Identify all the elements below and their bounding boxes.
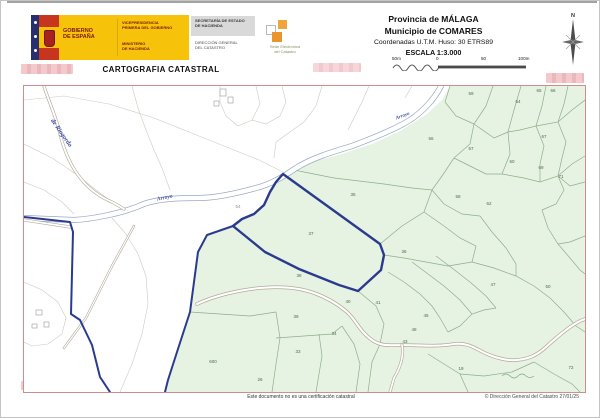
flag-stars-stripe bbox=[31, 15, 39, 60]
utm-coordinates-label: Coordenadas U.T.M. Huso: 30 ETRS89 bbox=[331, 38, 536, 48]
parcel-number-label: 59 bbox=[468, 91, 474, 96]
parcel-number-label: 60 bbox=[509, 159, 515, 164]
scale-bar-graphic bbox=[392, 62, 534, 71]
dir-line2: DEL CATASTRO bbox=[195, 45, 225, 50]
parcel-number-label: 69 bbox=[538, 165, 544, 170]
parcel-number-label: 38 bbox=[296, 273, 302, 278]
parcel-number-label: 43 bbox=[402, 339, 408, 344]
catastro-square-icon bbox=[272, 32, 282, 42]
parcel-number-label: 66 bbox=[550, 88, 556, 93]
redacted-area bbox=[546, 73, 584, 83]
parcel-number-label: 40 bbox=[345, 299, 351, 304]
secretaria-estado-label: SECRETARÍA DE ESTADO DE HACIENDA bbox=[191, 16, 255, 36]
parcel-number-label: 47 bbox=[490, 282, 496, 287]
parcel-number-label: 54 bbox=[235, 204, 241, 209]
parcel-number-label: 72 bbox=[568, 365, 574, 370]
min-line2: DE HACIENDA bbox=[122, 46, 150, 51]
redacted-area bbox=[21, 64, 73, 74]
gobierno-espana-logo: GOBIERNO DE ESPAÑA VICEPRESIDENCIA PRIME… bbox=[39, 15, 189, 60]
parcel-number-label: 35 bbox=[350, 192, 356, 197]
parcel-number-label: 45 bbox=[423, 313, 429, 318]
parcel-number-label: 37 bbox=[308, 231, 314, 236]
parcel-number-label: 26 bbox=[257, 377, 263, 382]
cadastral-map[interactable]: 5964656656576760697158623537363840413945… bbox=[24, 86, 585, 392]
municipal-boundary bbox=[24, 217, 110, 392]
scale-tick-label: 100m bbox=[518, 56, 530, 61]
coat-of-arms-icon bbox=[44, 30, 55, 47]
catastro-square-icon bbox=[278, 20, 287, 29]
star-icon bbox=[34, 35, 37, 38]
parcel-number-label: 58 bbox=[455, 194, 461, 199]
scale-tick-label: 0 bbox=[436, 56, 439, 61]
location-header: Provincia de MÁLAGA Municipio de COMARES… bbox=[331, 14, 536, 58]
scale-solid-bar bbox=[438, 66, 526, 69]
gobierno-label: GOBIERNO DE ESPAÑA bbox=[63, 28, 113, 41]
divider bbox=[117, 19, 118, 56]
parcel-number-label: 67 bbox=[541, 134, 547, 139]
provincia-label: Provincia de MÁLAGA bbox=[331, 14, 536, 26]
scale-zigzag bbox=[393, 65, 439, 71]
compass-n-label: N bbox=[571, 13, 575, 19]
gobierno-line2: DE ESPAÑA bbox=[63, 34, 95, 40]
parcel-number-label: 71 bbox=[558, 174, 564, 179]
star-icon bbox=[34, 21, 37, 24]
sec-line2: DE HACIENDA bbox=[195, 23, 223, 28]
direccion-general-label: DIRECCIÓN GENERAL DEL CATASTRO bbox=[191, 41, 255, 57]
scale-tick-label: 50m bbox=[392, 56, 401, 61]
sede-line2: del Catastro bbox=[274, 49, 296, 54]
parcel-number-label: 41 bbox=[375, 300, 381, 305]
parcel-number-label: 56 bbox=[428, 136, 434, 141]
copyright-text: © Dirección General del Catastro 27/01/2… bbox=[401, 394, 579, 400]
parcel-number-label: 57 bbox=[468, 146, 474, 151]
parcel-number-label: 64 bbox=[515, 99, 521, 104]
page-title: CARTOGRAFIA CATASTRAL bbox=[61, 65, 261, 74]
map-frame: 5964656656576760697158623537363840413945… bbox=[23, 85, 586, 393]
redacted-area bbox=[313, 63, 361, 72]
municipio-label: Municipio de COMARES bbox=[331, 26, 536, 38]
vice-line2: PRIMERA DEL GOBIERNO bbox=[122, 25, 172, 30]
parcel-number-label: 19 bbox=[458, 366, 464, 371]
parcel-number-label: 36 bbox=[401, 249, 407, 254]
sede-electronica-logo: Sede Electrónica del Catastro bbox=[264, 18, 306, 58]
vicepresidencia-label: VICEPRESIDENCIA PRIMERA DEL GOBIERNO bbox=[122, 21, 186, 30]
parcel-number-label: 65 bbox=[536, 88, 542, 93]
road-casing bbox=[44, 86, 124, 209]
flag-band bbox=[39, 15, 59, 27]
parcel-number-label: 33 bbox=[295, 349, 301, 354]
parcel-number-label: 34 bbox=[331, 331, 337, 336]
parcel-number-label: 600 bbox=[209, 359, 217, 364]
parcel-number-label: 62 bbox=[486, 201, 492, 206]
scan-edge-line bbox=[7, 1, 597, 3]
road-surface bbox=[44, 86, 124, 209]
parcel-number-label: 48 bbox=[411, 327, 417, 332]
scale-bar: 50m 0 50 100m bbox=[392, 56, 534, 70]
ministerio-label: MINISTERIO DE HACIENDA bbox=[122, 42, 186, 51]
parcel-number-label: 39 bbox=[293, 314, 299, 319]
parcel-number-label: 50 bbox=[545, 284, 551, 289]
cadastral-map-document: GOBIERNO DE ESPAÑA VICEPRESIDENCIA PRIME… bbox=[0, 0, 600, 418]
road-surface bbox=[64, 226, 134, 348]
flag-band bbox=[39, 48, 59, 60]
scale-tick-label: 50 bbox=[481, 56, 486, 61]
spain-flag-icon bbox=[39, 15, 59, 60]
sede-electronica-label: Sede Electrónica del Catastro bbox=[264, 45, 306, 55]
compass-rose: N bbox=[551, 9, 595, 69]
star-icon bbox=[34, 49, 37, 52]
